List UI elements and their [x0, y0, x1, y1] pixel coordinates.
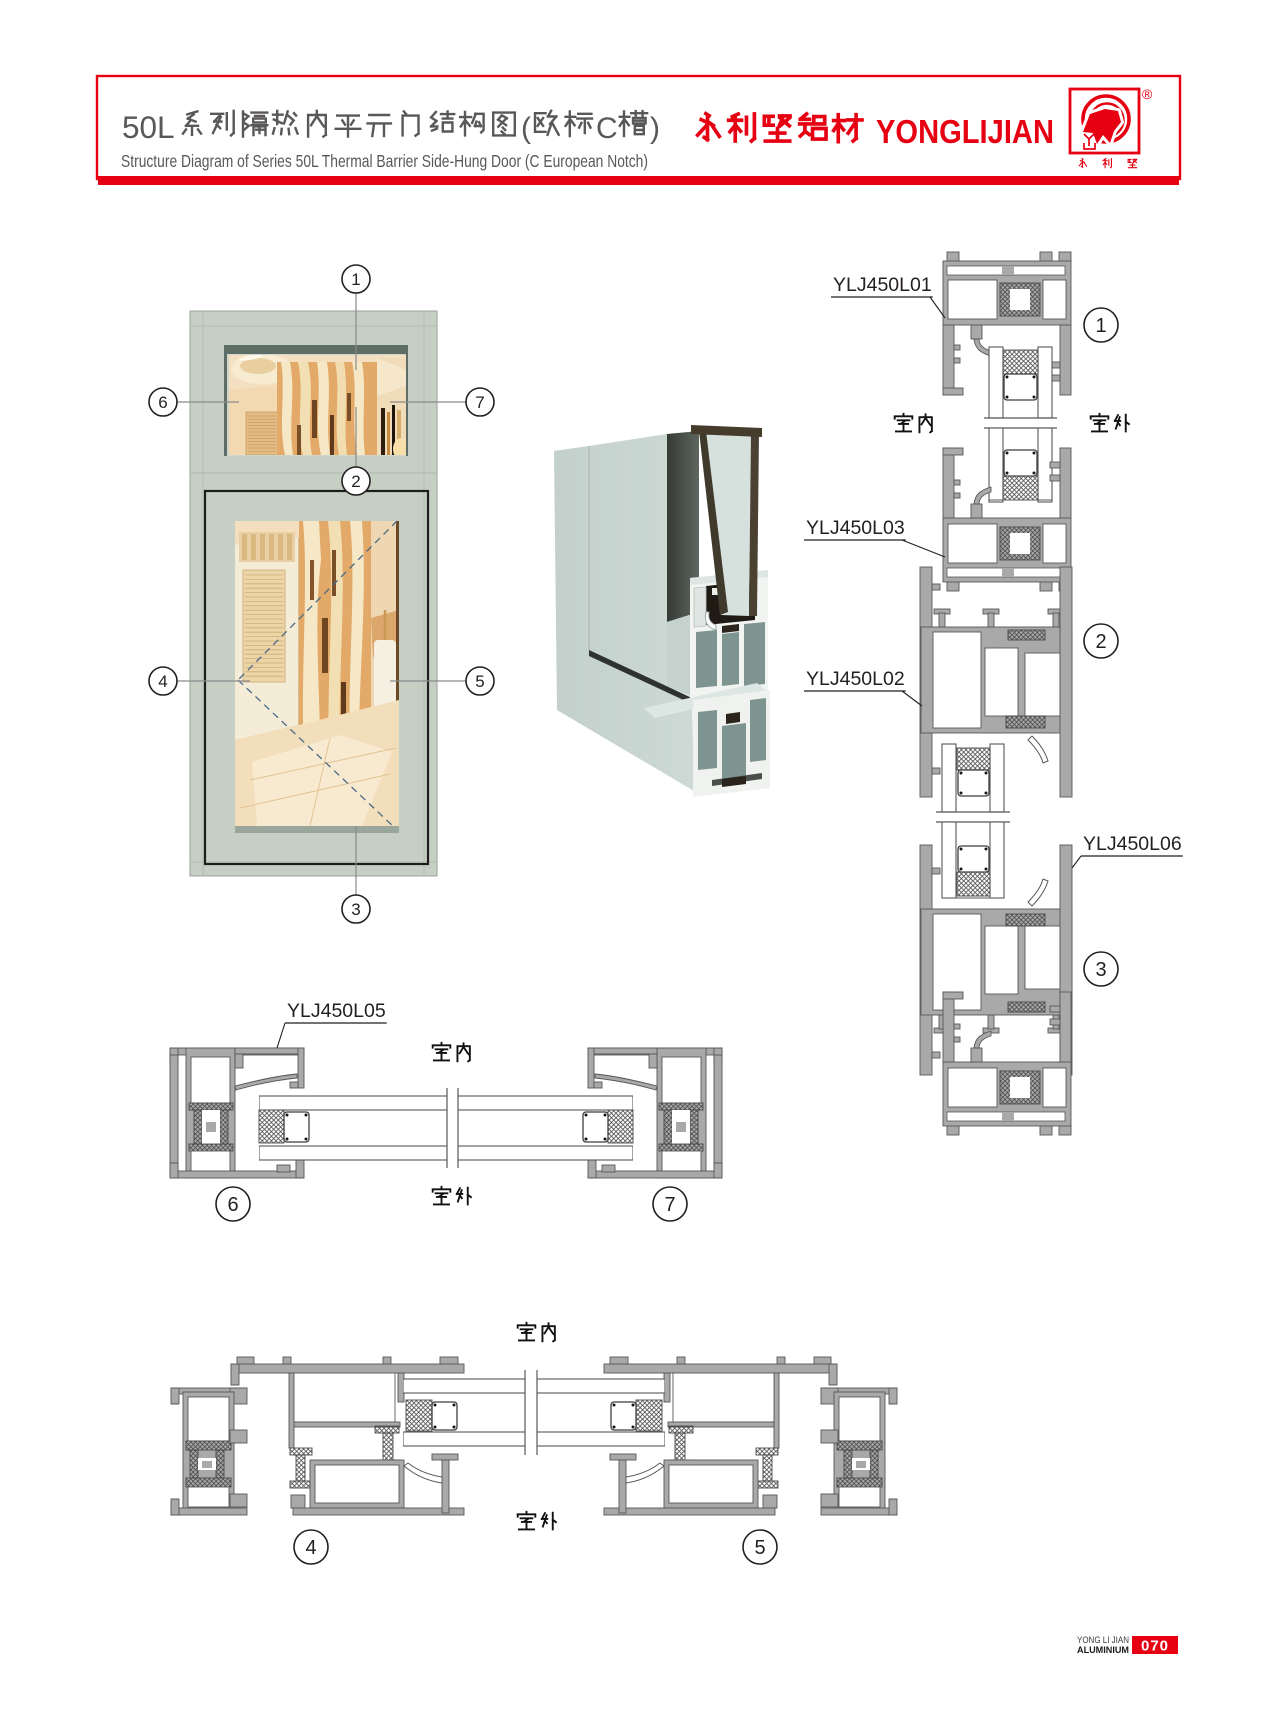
svg-text:YLJ450L02: YLJ450L02: [806, 668, 905, 690]
svg-text:): ): [650, 112, 660, 145]
svg-text:YLJ450L05: YLJ450L05: [287, 1000, 386, 1022]
svg-text:5: 5: [475, 672, 484, 691]
svg-text:ALUMINIUM: ALUMINIUM: [1077, 1645, 1129, 1656]
svg-text:Structure Diagram of Series 50: Structure Diagram of Series 50L Thermal …: [121, 151, 648, 171]
svg-text:3: 3: [351, 900, 360, 919]
svg-text:®: ®: [1142, 86, 1153, 102]
svg-text:YLJ450L01: YLJ450L01: [833, 274, 932, 296]
svg-text:5: 5: [754, 1537, 765, 1559]
svg-text:2: 2: [1095, 631, 1106, 653]
svg-text:2: 2: [351, 472, 360, 491]
svg-text:4: 4: [305, 1537, 316, 1559]
svg-text:6: 6: [227, 1194, 238, 1216]
svg-text:3: 3: [1095, 959, 1106, 981]
svg-text:YLJ450L03: YLJ450L03: [806, 517, 905, 539]
svg-text:50L: 50L: [122, 109, 175, 145]
svg-text:4: 4: [158, 672, 167, 691]
svg-text:(: (: [521, 112, 531, 145]
svg-text:C: C: [596, 112, 618, 145]
svg-text:YONGLIJIAN: YONGLIJIAN: [876, 113, 1054, 150]
svg-text:1: 1: [1095, 315, 1106, 337]
svg-text:070: 070: [1141, 1638, 1169, 1655]
svg-text:6: 6: [158, 393, 167, 412]
svg-text:1: 1: [351, 270, 360, 289]
svg-text:7: 7: [664, 1194, 675, 1216]
svg-text:7: 7: [475, 393, 484, 412]
svg-text:YLJ450L06: YLJ450L06: [1083, 833, 1182, 855]
